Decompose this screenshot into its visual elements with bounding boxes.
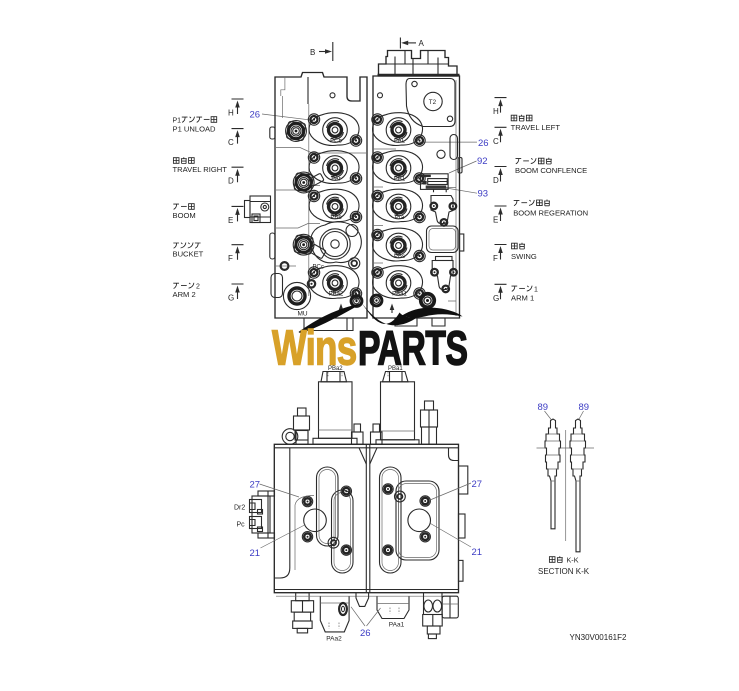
svg-text:F: F <box>493 254 498 263</box>
svg-text:27: 27 <box>250 480 261 491</box>
svg-text:PBa1: PBa1 <box>392 291 407 297</box>
svg-text:H: H <box>228 109 234 118</box>
svg-text:ARM 2: ARM 2 <box>173 290 196 299</box>
svg-text:BOOM REGERATION: BOOM REGERATION <box>513 209 588 218</box>
svg-text:26: 26 <box>478 138 489 149</box>
svg-text:21: 21 <box>250 548 261 559</box>
svg-text:26: 26 <box>360 628 371 639</box>
svg-text:G: G <box>228 294 234 303</box>
svg-text:TRAVEL RIGHT: TRAVEL RIGHT <box>173 165 228 174</box>
svg-text:PBb: PBb <box>330 215 342 221</box>
svg-text:K-K: K-K <box>567 556 579 565</box>
svg-text:B: B <box>310 48 315 57</box>
svg-text:1: 1 <box>534 287 538 294</box>
svg-text:PBa2: PBa2 <box>329 291 344 297</box>
svg-text:E: E <box>228 216 233 225</box>
svg-text:93: 93 <box>478 189 489 200</box>
svg-text:SECTION K-K: SECTION K-K <box>538 567 590 576</box>
svg-text:PCc: PCc <box>313 265 324 271</box>
svg-text:PAr: PAr <box>331 176 341 182</box>
svg-text:27: 27 <box>472 479 483 490</box>
svg-text:92: 92 <box>477 156 488 167</box>
svg-text:C: C <box>228 138 234 147</box>
svg-text:TRAVEL LEFT: TRAVEL LEFT <box>511 123 561 132</box>
svg-text:26: 26 <box>250 110 261 121</box>
svg-text:P1 UNLOAD: P1 UNLOAD <box>173 124 217 133</box>
svg-text:T2: T2 <box>429 99 437 106</box>
svg-text:SWING: SWING <box>511 252 537 261</box>
svg-text:Wins: Wins <box>272 322 356 376</box>
svg-text:BOOM CONFLENCE: BOOM CONFLENCE <box>515 166 587 175</box>
svg-text:F: F <box>228 254 233 263</box>
svg-text:BOOM: BOOM <box>173 211 196 220</box>
svg-text:H: H <box>493 107 499 116</box>
svg-text:PAL: PAL <box>394 138 406 144</box>
svg-text:PARTS: PARTS <box>358 320 468 374</box>
svg-text:Pra: Pra <box>395 215 405 221</box>
svg-text:89: 89 <box>538 402 549 413</box>
svg-text:E: E <box>493 216 498 225</box>
svg-text:Pc: Pc <box>237 522 246 529</box>
svg-text:PB1: PB1 <box>394 176 406 182</box>
svg-text:PBs: PBs <box>394 254 405 260</box>
svg-text:YN30V00161F2: YN30V00161F2 <box>570 633 627 642</box>
svg-text:D: D <box>493 176 499 185</box>
svg-text:BUCKET: BUCKET <box>173 249 204 258</box>
svg-text:C: C <box>493 137 499 146</box>
svg-text:PCb: PCb <box>330 138 342 144</box>
svg-text:21: 21 <box>472 547 483 558</box>
svg-text:PAa2: PAa2 <box>326 636 342 643</box>
svg-text:ARM 1: ARM 1 <box>511 293 534 302</box>
svg-text:G: G <box>493 294 499 303</box>
svg-text:89: 89 <box>579 402 590 413</box>
svg-text:PAa1: PAa1 <box>389 622 405 629</box>
svg-text:2: 2 <box>196 284 200 291</box>
svg-text:D: D <box>228 177 234 186</box>
svg-text:Dr2: Dr2 <box>234 505 245 512</box>
svg-text:A: A <box>419 39 425 48</box>
svg-text:MU: MU <box>298 311 308 318</box>
